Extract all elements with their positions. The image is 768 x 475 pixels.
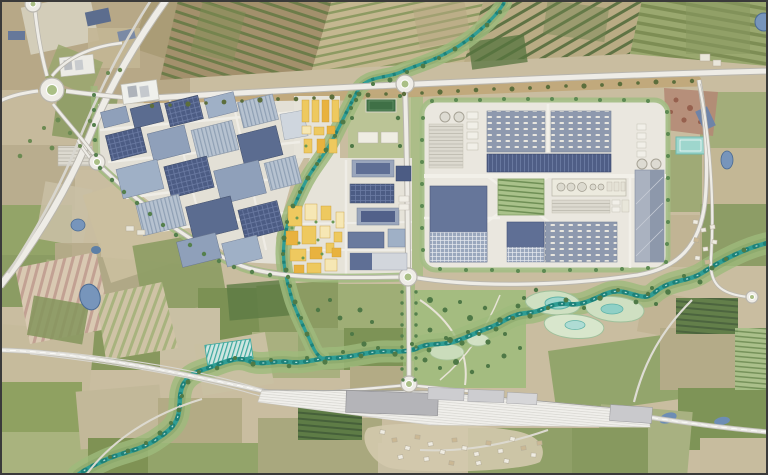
- rect-shape: [428, 387, 464, 400]
- house: [392, 438, 397, 443]
- yellow-building: [310, 247, 322, 259]
- embankment-trees: [384, 92, 388, 96]
- boundary-trees: [250, 270, 254, 274]
- scattered-trees: [427, 297, 433, 303]
- plaza-trees: [305, 145, 308, 148]
- platform-ring-trees: [646, 266, 650, 270]
- rect-shape: [676, 298, 738, 334]
- scattered-trees: [354, 98, 358, 102]
- platform-ring-trees: [438, 267, 442, 271]
- yellow-building: [321, 206, 331, 220]
- rect-shape: [735, 328, 768, 390]
- platform-ring-trees: [664, 260, 668, 264]
- platform-ring-trees: [620, 267, 624, 271]
- scattered-trees: [453, 359, 459, 365]
- circle-shape: [404, 273, 412, 281]
- river-trees: [376, 346, 380, 350]
- yellow-building: [312, 100, 319, 122]
- rect-shape: [507, 392, 538, 405]
- tree-dot: [674, 98, 679, 103]
- river-trees: [144, 441, 148, 445]
- plaza-trees: [291, 227, 294, 230]
- river-trees: [250, 361, 255, 366]
- scattered-trees: [646, 292, 650, 296]
- river-trees: [287, 364, 292, 369]
- scattered-trees: [350, 144, 354, 148]
- parking-area: [552, 200, 610, 213]
- scattered-trees: [447, 337, 453, 343]
- yellow-building: [286, 231, 298, 245]
- river-trees: [269, 358, 273, 362]
- avenue-trees: [414, 290, 417, 293]
- circle-shape: [750, 295, 755, 300]
- house: [449, 461, 455, 466]
- avenue-trees: [400, 345, 403, 348]
- river-trees: [477, 332, 481, 336]
- solar-roof-hall: [487, 154, 611, 172]
- rect-shape: [356, 163, 390, 174]
- river-trees: [341, 350, 345, 354]
- boundary-trees: [286, 275, 290, 279]
- platform-ring-trees: [516, 269, 520, 273]
- river-trees: [158, 431, 163, 436]
- platform-ring-trees: [421, 248, 425, 252]
- tank: [578, 183, 587, 192]
- river-trees: [322, 359, 327, 364]
- house: [510, 437, 516, 442]
- scattered-trees: [370, 320, 374, 324]
- interchange-greens: [50, 146, 55, 151]
- stream-trees: [324, 148, 329, 153]
- factory-hall: [545, 222, 617, 262]
- avenue-trees: [401, 378, 404, 381]
- stream-trees: [288, 284, 292, 288]
- boundary-trees: [92, 108, 96, 112]
- rect-shape: [637, 151, 646, 157]
- yellow-building: [307, 263, 321, 273]
- scattered-trees: [516, 304, 521, 309]
- embankment-trees: [294, 97, 299, 102]
- boundary-trees: [93, 138, 97, 142]
- yellow-building: [336, 212, 344, 228]
- landscaped-plot: [498, 179, 544, 215]
- avenue-trees: [400, 301, 403, 304]
- platform-ring-trees: [550, 97, 554, 101]
- masterplan-figure: [0, 0, 768, 475]
- stream-trees: [469, 37, 473, 41]
- house: [474, 452, 480, 457]
- river-trees: [186, 380, 191, 385]
- rect-shape: [700, 438, 768, 475]
- circle-shape: [94, 159, 101, 166]
- river-trees: [650, 286, 654, 290]
- platform-ring-trees: [574, 97, 578, 101]
- avenue-trees: [414, 345, 417, 348]
- river-trees: [359, 354, 364, 359]
- platform-ring-trees: [665, 110, 669, 114]
- scattered-trees: [486, 364, 490, 368]
- platform-ring-trees: [420, 160, 424, 164]
- house: [531, 453, 536, 457]
- river-trees: [564, 298, 569, 303]
- storage-tank: [637, 159, 647, 169]
- platform-ring-trees: [420, 182, 424, 186]
- scattered-trees: [438, 366, 442, 370]
- plaza-trees: [296, 217, 299, 220]
- scattered-trees: [443, 308, 448, 313]
- embankment-trees: [185, 101, 190, 106]
- stream-trees: [333, 134, 337, 138]
- yellow-building: [288, 206, 302, 226]
- embankment-trees: [581, 83, 586, 88]
- yellow-building: [325, 259, 337, 271]
- yellow-building: [334, 232, 342, 242]
- river-trees: [710, 266, 715, 271]
- service-building: [358, 132, 378, 143]
- embankment-trees: [402, 92, 406, 96]
- platform-ring-trees: [526, 97, 530, 101]
- platform-ring-trees: [666, 220, 670, 224]
- embankment-trees: [564, 84, 568, 88]
- avenue-trees: [414, 323, 417, 326]
- rect-shape: [361, 211, 395, 222]
- interchange-greens: [28, 139, 32, 143]
- river-trees: [410, 342, 414, 346]
- house: [712, 240, 717, 244]
- avenue-trees: [414, 367, 417, 370]
- stream-trees: [341, 120, 346, 125]
- embankment-trees: [329, 94, 334, 99]
- industrial-building: [350, 184, 394, 203]
- rect-shape: [668, 150, 702, 212]
- rect-shape: [467, 112, 478, 119]
- house: [476, 461, 482, 466]
- yellow-building: [302, 100, 309, 122]
- yellow-building: [327, 126, 335, 134]
- embankment-trees: [348, 94, 352, 98]
- rect-shape: [399, 196, 409, 202]
- farm-building: [713, 60, 721, 66]
- boundary-trees: [92, 93, 96, 97]
- boundary-trees: [94, 153, 98, 157]
- embankment-trees: [222, 100, 227, 105]
- house: [694, 238, 700, 243]
- yellow-building: [302, 126, 311, 134]
- embankment-trees: [150, 104, 154, 108]
- river-trees: [177, 408, 182, 413]
- platform-ring-trees: [568, 268, 572, 272]
- farm-building: [126, 226, 134, 231]
- boundary-trees: [268, 273, 272, 277]
- scattered-trees: [358, 308, 363, 313]
- yellow-building: [322, 100, 329, 122]
- rect-shape: [430, 232, 487, 262]
- platform-ring-trees: [666, 176, 670, 180]
- scattered-trees: [396, 116, 400, 120]
- rect-shape: [686, 2, 750, 54]
- platform-ring-trees: [430, 99, 434, 103]
- stream-trees: [291, 204, 296, 209]
- pond: [721, 151, 733, 169]
- interchange-greens: [42, 126, 46, 130]
- tree-dot: [681, 117, 686, 122]
- stream-trees: [298, 190, 302, 194]
- embankment-trees: [672, 80, 676, 84]
- stream-trees: [282, 236, 287, 241]
- house: [498, 449, 503, 453]
- scattered-trees: [502, 354, 507, 359]
- rect-shape: [399, 204, 409, 210]
- house: [701, 228, 707, 233]
- river-trees: [597, 295, 603, 301]
- industrial-building: [396, 166, 411, 181]
- platform-ring-trees: [542, 269, 546, 273]
- house: [695, 256, 700, 261]
- scattered-trees: [518, 346, 522, 350]
- scattered-trees: [338, 316, 343, 321]
- house: [537, 441, 542, 445]
- rect-shape: [467, 122, 478, 129]
- river-trees: [305, 356, 309, 360]
- stream-trees: [498, 10, 502, 14]
- platform-ring-trees: [665, 242, 669, 246]
- platform-ring-trees: [490, 268, 494, 272]
- scattered-trees: [350, 332, 354, 336]
- tree-dot: [687, 105, 693, 111]
- stream-trees: [315, 162, 319, 166]
- stream-trees: [293, 300, 298, 305]
- plaza-trees: [302, 257, 305, 260]
- avenue-trees: [414, 312, 417, 315]
- embankment-trees: [690, 79, 694, 83]
- boundary-trees: [174, 233, 178, 237]
- plaza-trees: [298, 242, 301, 245]
- yellow-building: [302, 226, 316, 244]
- rect-shape: [467, 143, 478, 150]
- embankment-trees: [528, 86, 532, 90]
- embankment-trees: [168, 103, 172, 107]
- embankment-trees: [600, 83, 604, 87]
- interchange-greens: [78, 144, 82, 148]
- rect-shape: [650, 170, 664, 262]
- platform-ring-trees: [598, 98, 602, 102]
- rect-shape: [127, 85, 137, 97]
- rect-shape: [148, 443, 260, 475]
- avenue-trees: [400, 312, 403, 315]
- parking-area: [429, 124, 463, 168]
- tank: [557, 183, 565, 191]
- plaza-trees: [315, 221, 318, 224]
- stream-trees: [285, 220, 289, 224]
- interchange-greens: [18, 154, 23, 159]
- avenue-trees: [414, 356, 417, 359]
- platform-ring-trees: [478, 98, 482, 102]
- river-trees: [233, 356, 237, 360]
- boundary-trees: [122, 190, 126, 194]
- service-building: [381, 132, 398, 143]
- rect-shape: [637, 142, 646, 148]
- scattered-trees: [428, 328, 433, 333]
- boundary-trees: [110, 178, 114, 182]
- scattered-trees: [350, 116, 354, 120]
- stream-trees: [405, 70, 409, 74]
- stream-trees: [453, 47, 458, 52]
- platform-ring-trees: [420, 204, 424, 208]
- tank: [567, 183, 575, 191]
- masterplan-map: [0, 0, 768, 475]
- house: [398, 455, 404, 460]
- platform-ring-trees: [421, 116, 425, 120]
- boundary-trees: [232, 265, 236, 269]
- platform-ring-trees: [502, 97, 506, 101]
- scattered-trees: [534, 288, 538, 292]
- river-trees: [459, 340, 464, 345]
- yellow-building: [329, 139, 337, 153]
- platform-ring-trees: [666, 198, 670, 202]
- circle-shape: [406, 381, 413, 388]
- platform-ring-trees: [594, 268, 598, 272]
- scattered-trees: [470, 370, 474, 374]
- avenue-trees: [414, 334, 417, 337]
- embankment-trees: [618, 82, 623, 87]
- rect-shape: [74, 60, 83, 71]
- plaza-trees: [321, 253, 324, 256]
- boundary-trees: [135, 201, 139, 205]
- scattered-trees: [458, 300, 462, 304]
- factory-hall: [551, 111, 611, 152]
- yellow-building: [332, 248, 341, 257]
- platform-ring-trees: [666, 132, 670, 136]
- avenue-trees: [400, 323, 403, 326]
- plaza-trees: [319, 156, 322, 159]
- rect-shape: [614, 182, 619, 191]
- circle-shape: [401, 80, 409, 88]
- plaza-trees: [332, 221, 335, 224]
- river-trees: [511, 316, 515, 320]
- storage-tank: [440, 112, 450, 122]
- path-shape: [408, 278, 409, 382]
- lagoon-pool: [601, 304, 623, 314]
- house: [705, 260, 711, 265]
- avenue-trees: [400, 290, 403, 293]
- factory-hall: [487, 111, 545, 152]
- yellow-building: [294, 265, 304, 273]
- avenue-trees: [400, 367, 403, 370]
- embankment-trees: [437, 89, 442, 94]
- interchange-greens: [88, 119, 92, 123]
- storage-tank: [651, 159, 661, 169]
- farm-building: [700, 54, 710, 61]
- river-trees: [546, 306, 550, 310]
- river-trees: [392, 351, 397, 356]
- river-trees: [215, 366, 220, 371]
- rect-shape: [139, 85, 149, 97]
- house: [424, 457, 429, 462]
- house: [405, 446, 411, 451]
- industrial-building: [348, 232, 384, 248]
- avenue-trees: [400, 334, 403, 337]
- rect-shape: [0, 382, 82, 440]
- house: [440, 450, 446, 455]
- river-trees: [634, 300, 639, 305]
- factory-hall: [507, 222, 544, 247]
- pond: [91, 246, 101, 254]
- boundary-trees: [188, 243, 192, 247]
- stream-trees: [299, 316, 303, 320]
- stream-trees: [357, 92, 362, 97]
- boundary-trees: [202, 252, 206, 256]
- embankment-trees: [366, 93, 371, 98]
- platform-ring-trees: [454, 98, 458, 102]
- scattered-trees: [654, 302, 658, 306]
- rect-shape: [622, 200, 629, 212]
- industrial-building: [388, 229, 405, 247]
- boundary-trees: [148, 212, 152, 216]
- yellow-building: [305, 204, 317, 220]
- interchange-greens: [68, 131, 72, 135]
- house: [452, 438, 457, 442]
- house: [703, 247, 708, 251]
- river-trees: [742, 248, 747, 253]
- platform-ring-trees: [420, 226, 424, 230]
- stream-trees: [281, 252, 285, 256]
- rect-shape: [637, 124, 646, 130]
- scattered-trees: [503, 332, 507, 336]
- river-trees: [427, 348, 432, 353]
- terminal-building: [346, 390, 439, 415]
- embankment-trees: [456, 89, 460, 93]
- pond: [71, 219, 85, 231]
- embankment-trees: [420, 91, 424, 95]
- avenue-trees: [414, 301, 417, 304]
- stream-trees: [349, 106, 353, 110]
- scattered-trees: [398, 144, 402, 148]
- scattered-trees: [398, 94, 402, 98]
- stream-trees: [437, 56, 441, 60]
- rect-shape: [637, 133, 646, 139]
- river-trees: [724, 257, 728, 261]
- avenue-trees: [413, 378, 416, 381]
- scattered-trees: [497, 317, 503, 323]
- yellow-building: [332, 100, 339, 122]
- embankment-trees: [636, 81, 640, 85]
- tank: [590, 184, 596, 190]
- scattered-trees: [485, 339, 490, 344]
- rect-shape: [609, 405, 652, 424]
- river-trees: [682, 274, 686, 278]
- house: [380, 430, 386, 435]
- river-trees: [169, 421, 173, 425]
- scattered-trees: [423, 358, 428, 363]
- embankment-trees: [240, 99, 244, 103]
- platform-ring-trees: [666, 154, 670, 158]
- scattered-trees: [361, 341, 366, 346]
- terraced-fields: [160, 0, 332, 80]
- scattered-trees: [466, 330, 470, 334]
- embankment-trees: [546, 85, 550, 89]
- rect-shape: [350, 253, 372, 270]
- river-trees: [108, 455, 112, 459]
- yellow-building: [314, 127, 324, 135]
- scattered-trees: [328, 298, 332, 302]
- interchange-greens: [118, 68, 122, 72]
- house: [462, 446, 467, 451]
- circle-shape: [47, 85, 58, 96]
- rect-shape: [612, 200, 620, 205]
- tank: [598, 184, 604, 190]
- stream-trees: [305, 332, 310, 337]
- platform-ring-trees: [646, 99, 650, 103]
